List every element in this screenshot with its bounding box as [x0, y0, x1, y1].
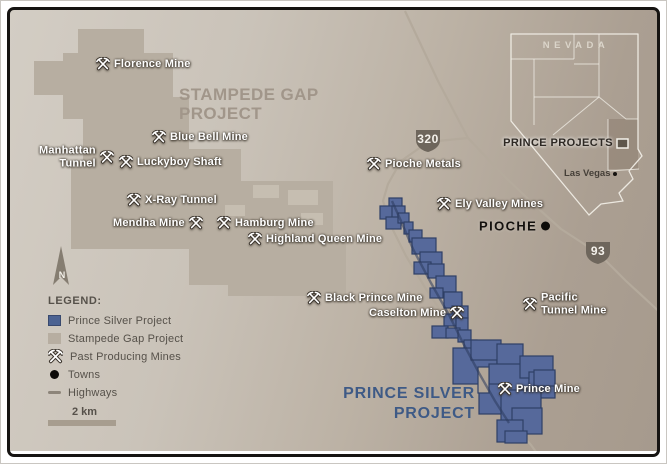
mine-label: Pioche Metals	[385, 158, 461, 171]
scale-label: 2 km	[72, 406, 97, 418]
legend: LEGEND: Prince Silver ProjectStampede Ga…	[48, 295, 198, 404]
legend-swatch-tan-square	[48, 333, 61, 344]
legend-swatch-dot	[50, 370, 59, 379]
crossed-picks-icon	[127, 193, 141, 207]
crossed-picks-icon	[48, 349, 63, 364]
mine-label: Blue Bell Mine	[170, 131, 248, 144]
mine-blue-bell-mine: Blue Bell Mine	[152, 130, 248, 144]
mine-label: Hamburg Mine	[235, 217, 314, 230]
las-vegas-dot	[613, 172, 617, 176]
prince-label-line1: PRINCE SILVER	[309, 384, 475, 404]
crossed-picks-icon	[523, 297, 537, 311]
mine-label: Luckyboy Shaft	[137, 156, 222, 169]
mine-caselton-mine: Caselton Mine	[369, 306, 464, 320]
prince-projects-label: PRINCE PROJECTS	[501, 137, 613, 149]
highway-shield-320: 320	[412, 127, 444, 155]
mine-hamburg-mine: Hamburg Mine	[217, 216, 314, 230]
prince-silver-project-label: PRINCE SILVER PROJECT	[309, 384, 475, 423]
mine-label: Highland Queen Mine	[266, 233, 382, 246]
nevada-state-label: NEVADA	[528, 40, 624, 51]
mine-prince-mine: Prince Mine	[498, 382, 580, 396]
legend-swatch-line	[48, 391, 61, 394]
mine-luckyboy-shaft: Luckyboy Shaft	[119, 155, 222, 169]
mine-mendha-mine: Mendha Mine	[113, 216, 203, 230]
scale-bar	[48, 420, 116, 426]
town-label: PIOCHE	[479, 219, 537, 234]
las-vegas-text: Las Vegas	[564, 168, 610, 179]
mine-label: Florence Mine	[114, 58, 191, 71]
prince-label-line2: PROJECT	[309, 404, 475, 424]
mine-pioche-metals: Pioche Metals	[367, 157, 461, 171]
crossed-picks-icon	[119, 155, 133, 169]
crossed-picks-icon	[189, 216, 203, 230]
legend-items: Prince Silver ProjectStampede Gap Projec…	[48, 314, 198, 399]
prince-projects-marker	[617, 139, 628, 148]
mine-label: X-Ray Tunnel	[145, 194, 217, 207]
legend-item-towns: Towns	[48, 368, 198, 381]
mine-x-ray-tunnel: X-Ray Tunnel	[127, 193, 217, 207]
crossed-picks-icon	[367, 157, 381, 171]
legend-item-label: Highways	[68, 387, 117, 399]
legend-item-label: Towns	[68, 369, 100, 381]
stampede-label-line2: PROJECT	[179, 104, 319, 123]
mine-label: Manhattan Tunnel	[39, 144, 96, 169]
nevada-inset	[511, 34, 642, 215]
town-pioche: PIOCHE	[479, 219, 550, 234]
highway-shield-93: 93	[582, 239, 614, 267]
legend-title: LEGEND:	[48, 295, 198, 307]
crossed-picks-icon	[100, 150, 114, 164]
mine-highland-queen-mine: Highland Queen Mine	[248, 232, 382, 246]
crossed-picks-icon	[96, 57, 110, 71]
crossed-picks-icon	[498, 382, 512, 396]
mine-black-prince-mine: Black Prince Mine	[307, 291, 423, 305]
shield-number: 93	[582, 239, 614, 267]
legend-item-past-producing-mines: Past Producing Mines	[48, 350, 198, 363]
mine-manhattan-tunnel: Manhattan Tunnel	[39, 144, 114, 169]
legend-item-highways: Highways	[48, 386, 198, 399]
shield-number: 320	[412, 127, 444, 155]
mine-label: Prince Mine	[516, 383, 580, 396]
mine-pacific-tunnel-mine: Pacific Tunnel Mine	[523, 291, 607, 316]
legend-item-label: Past Producing Mines	[70, 351, 181, 363]
crossed-picks-icon	[437, 197, 451, 211]
legend-item-label: Stampede Gap Project	[68, 333, 183, 345]
crossed-picks-icon	[152, 130, 166, 144]
legend-swatch-blue-square	[48, 315, 61, 326]
mine-label: Mendha Mine	[113, 217, 185, 230]
crossed-picks-icon	[217, 216, 231, 230]
mine-florence-mine: Florence Mine	[96, 57, 191, 71]
map-figure: STAMPEDE GAP PROJECT PRINCE SILVER PROJE…	[0, 0, 667, 464]
town-dot	[541, 222, 550, 231]
crossed-picks-icon	[307, 291, 321, 305]
legend-item-prince-silver-project: Prince Silver Project	[48, 314, 198, 327]
north-arrow-letter: N	[56, 270, 68, 280]
mine-label: Caselton Mine	[369, 307, 446, 320]
stampede-gap-project-label: STAMPEDE GAP PROJECT	[179, 85, 319, 124]
legend-item-label: Prince Silver Project	[68, 315, 171, 327]
map-canvas: STAMPEDE GAP PROJECT PRINCE SILVER PROJE…	[10, 9, 658, 451]
mine-label: Black Prince Mine	[325, 292, 423, 305]
mine-ely-valley-mines: Ely Valley Mines	[437, 197, 543, 211]
crossed-picks-icon	[248, 232, 262, 246]
crossed-picks-icon	[450, 306, 464, 320]
las-vegas-label: Las Vegas	[564, 168, 617, 179]
mine-label: Ely Valley Mines	[455, 198, 543, 211]
legend-item-stampede-gap-project: Stampede Gap Project	[48, 332, 198, 345]
mine-label: Pacific Tunnel Mine	[541, 291, 607, 316]
stampede-label-line1: STAMPEDE GAP	[179, 85, 319, 104]
